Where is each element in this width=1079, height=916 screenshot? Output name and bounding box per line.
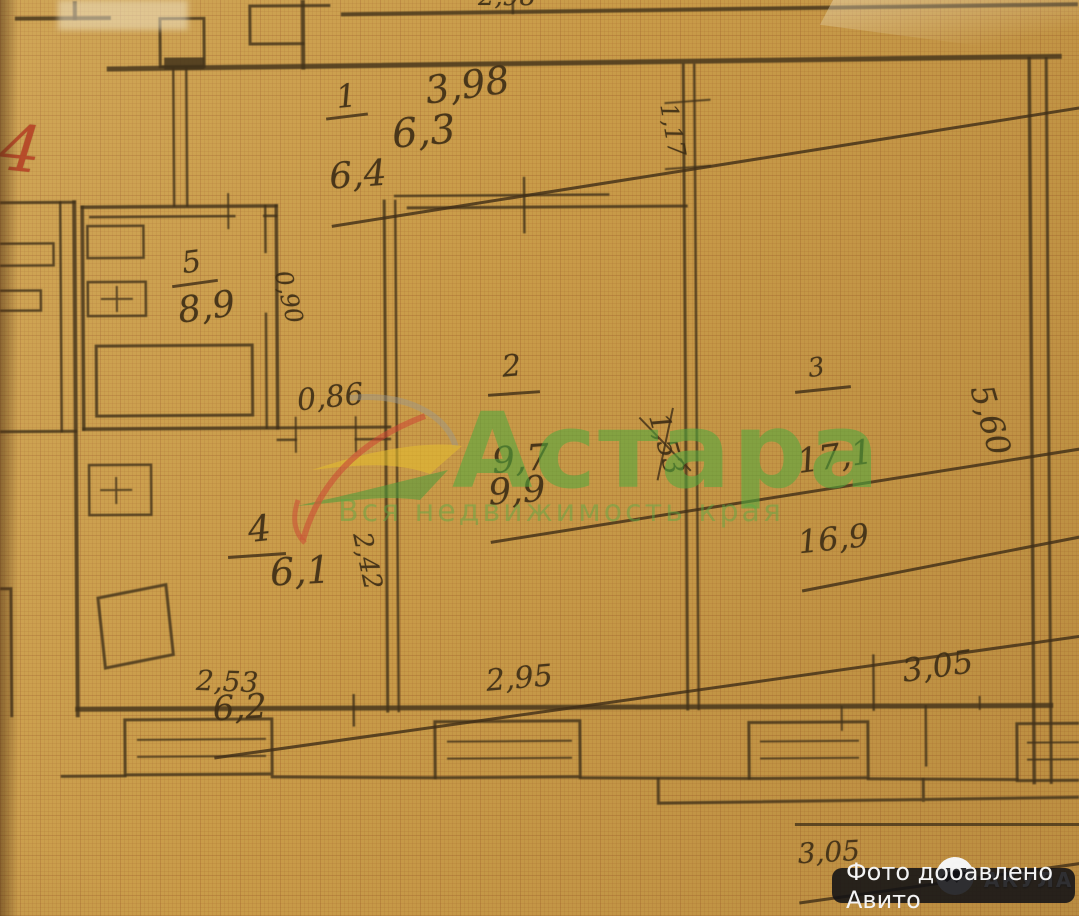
room-2-area-new: 9,7	[491, 440, 551, 480]
dim-hall-width: 3,98	[423, 60, 512, 109]
room-4-area-new: 6,1	[269, 550, 331, 591]
dim-bottom-room3-new: 3,05	[900, 645, 975, 687]
avito-badge-text: Фото добавлено Авито	[846, 858, 1075, 914]
room-3-number: 3	[806, 354, 826, 382]
dim-door-room4: 0,86	[296, 380, 366, 417]
room-1-number: 1	[334, 79, 358, 113]
dim-bottom-room2: 2,95	[485, 661, 554, 697]
dim-top-partial: 2,98	[478, 0, 536, 10]
red-ink-mark: 4	[0, 116, 44, 184]
floorplan-photo: 4 2,98 1 6,4 6,3 3,98 1,17 5 8,9 0,90 0,…	[0, 0, 1079, 916]
room-5-number: 5	[180, 247, 203, 279]
room-1-area-new: 6,3	[390, 109, 457, 154]
room-5-area: 8,9	[176, 286, 238, 330]
room-4-number: 4	[246, 511, 273, 549]
room-3-area-new: 17,1	[795, 435, 875, 479]
room-2-number: 2	[501, 351, 523, 383]
avito-badge: Фото добавлено Авито	[832, 868, 1075, 903]
dim-bottom-room4: 2,53	[196, 667, 259, 697]
